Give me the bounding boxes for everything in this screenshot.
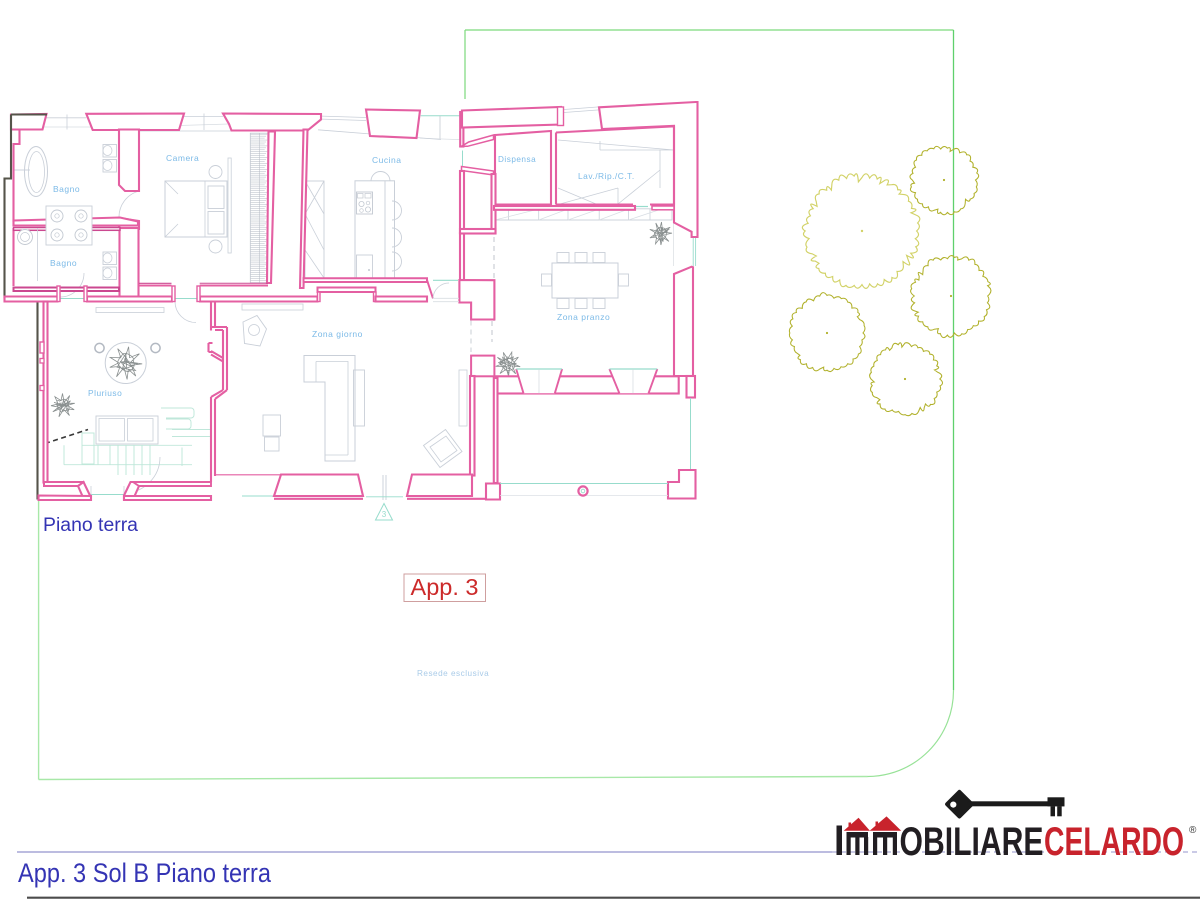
svg-text:Bagno: Bagno <box>50 258 77 268</box>
svg-text:OBILIARE: OBILIARE <box>900 820 1044 864</box>
svg-text:3: 3 <box>382 510 387 519</box>
svg-text:Pluriuso: Pluriuso <box>88 388 122 398</box>
svg-text:Zona pranzo: Zona pranzo <box>557 312 610 322</box>
svg-text:Cucina: Cucina <box>372 155 401 165</box>
svg-text:Dispensa: Dispensa <box>498 155 536 164</box>
svg-text:Camera: Camera <box>166 153 199 163</box>
svg-text:Piano terra: Piano terra <box>43 515 138 536</box>
svg-text:®: ® <box>1189 825 1197 836</box>
svg-text:Zona giorno: Zona giorno <box>312 329 363 339</box>
svg-text:Bagno: Bagno <box>53 184 80 194</box>
svg-text:Resede esclusiva: Resede esclusiva <box>417 669 489 678</box>
svg-text:App. 3 Sol B Piano terra: App. 3 Sol B Piano terra <box>18 858 271 888</box>
svg-text:Lav./Rip./C.T.: Lav./Rip./C.T. <box>578 171 635 181</box>
svg-text:App. 3: App. 3 <box>411 574 479 600</box>
svg-text:CELARDO: CELARDO <box>1044 820 1184 864</box>
